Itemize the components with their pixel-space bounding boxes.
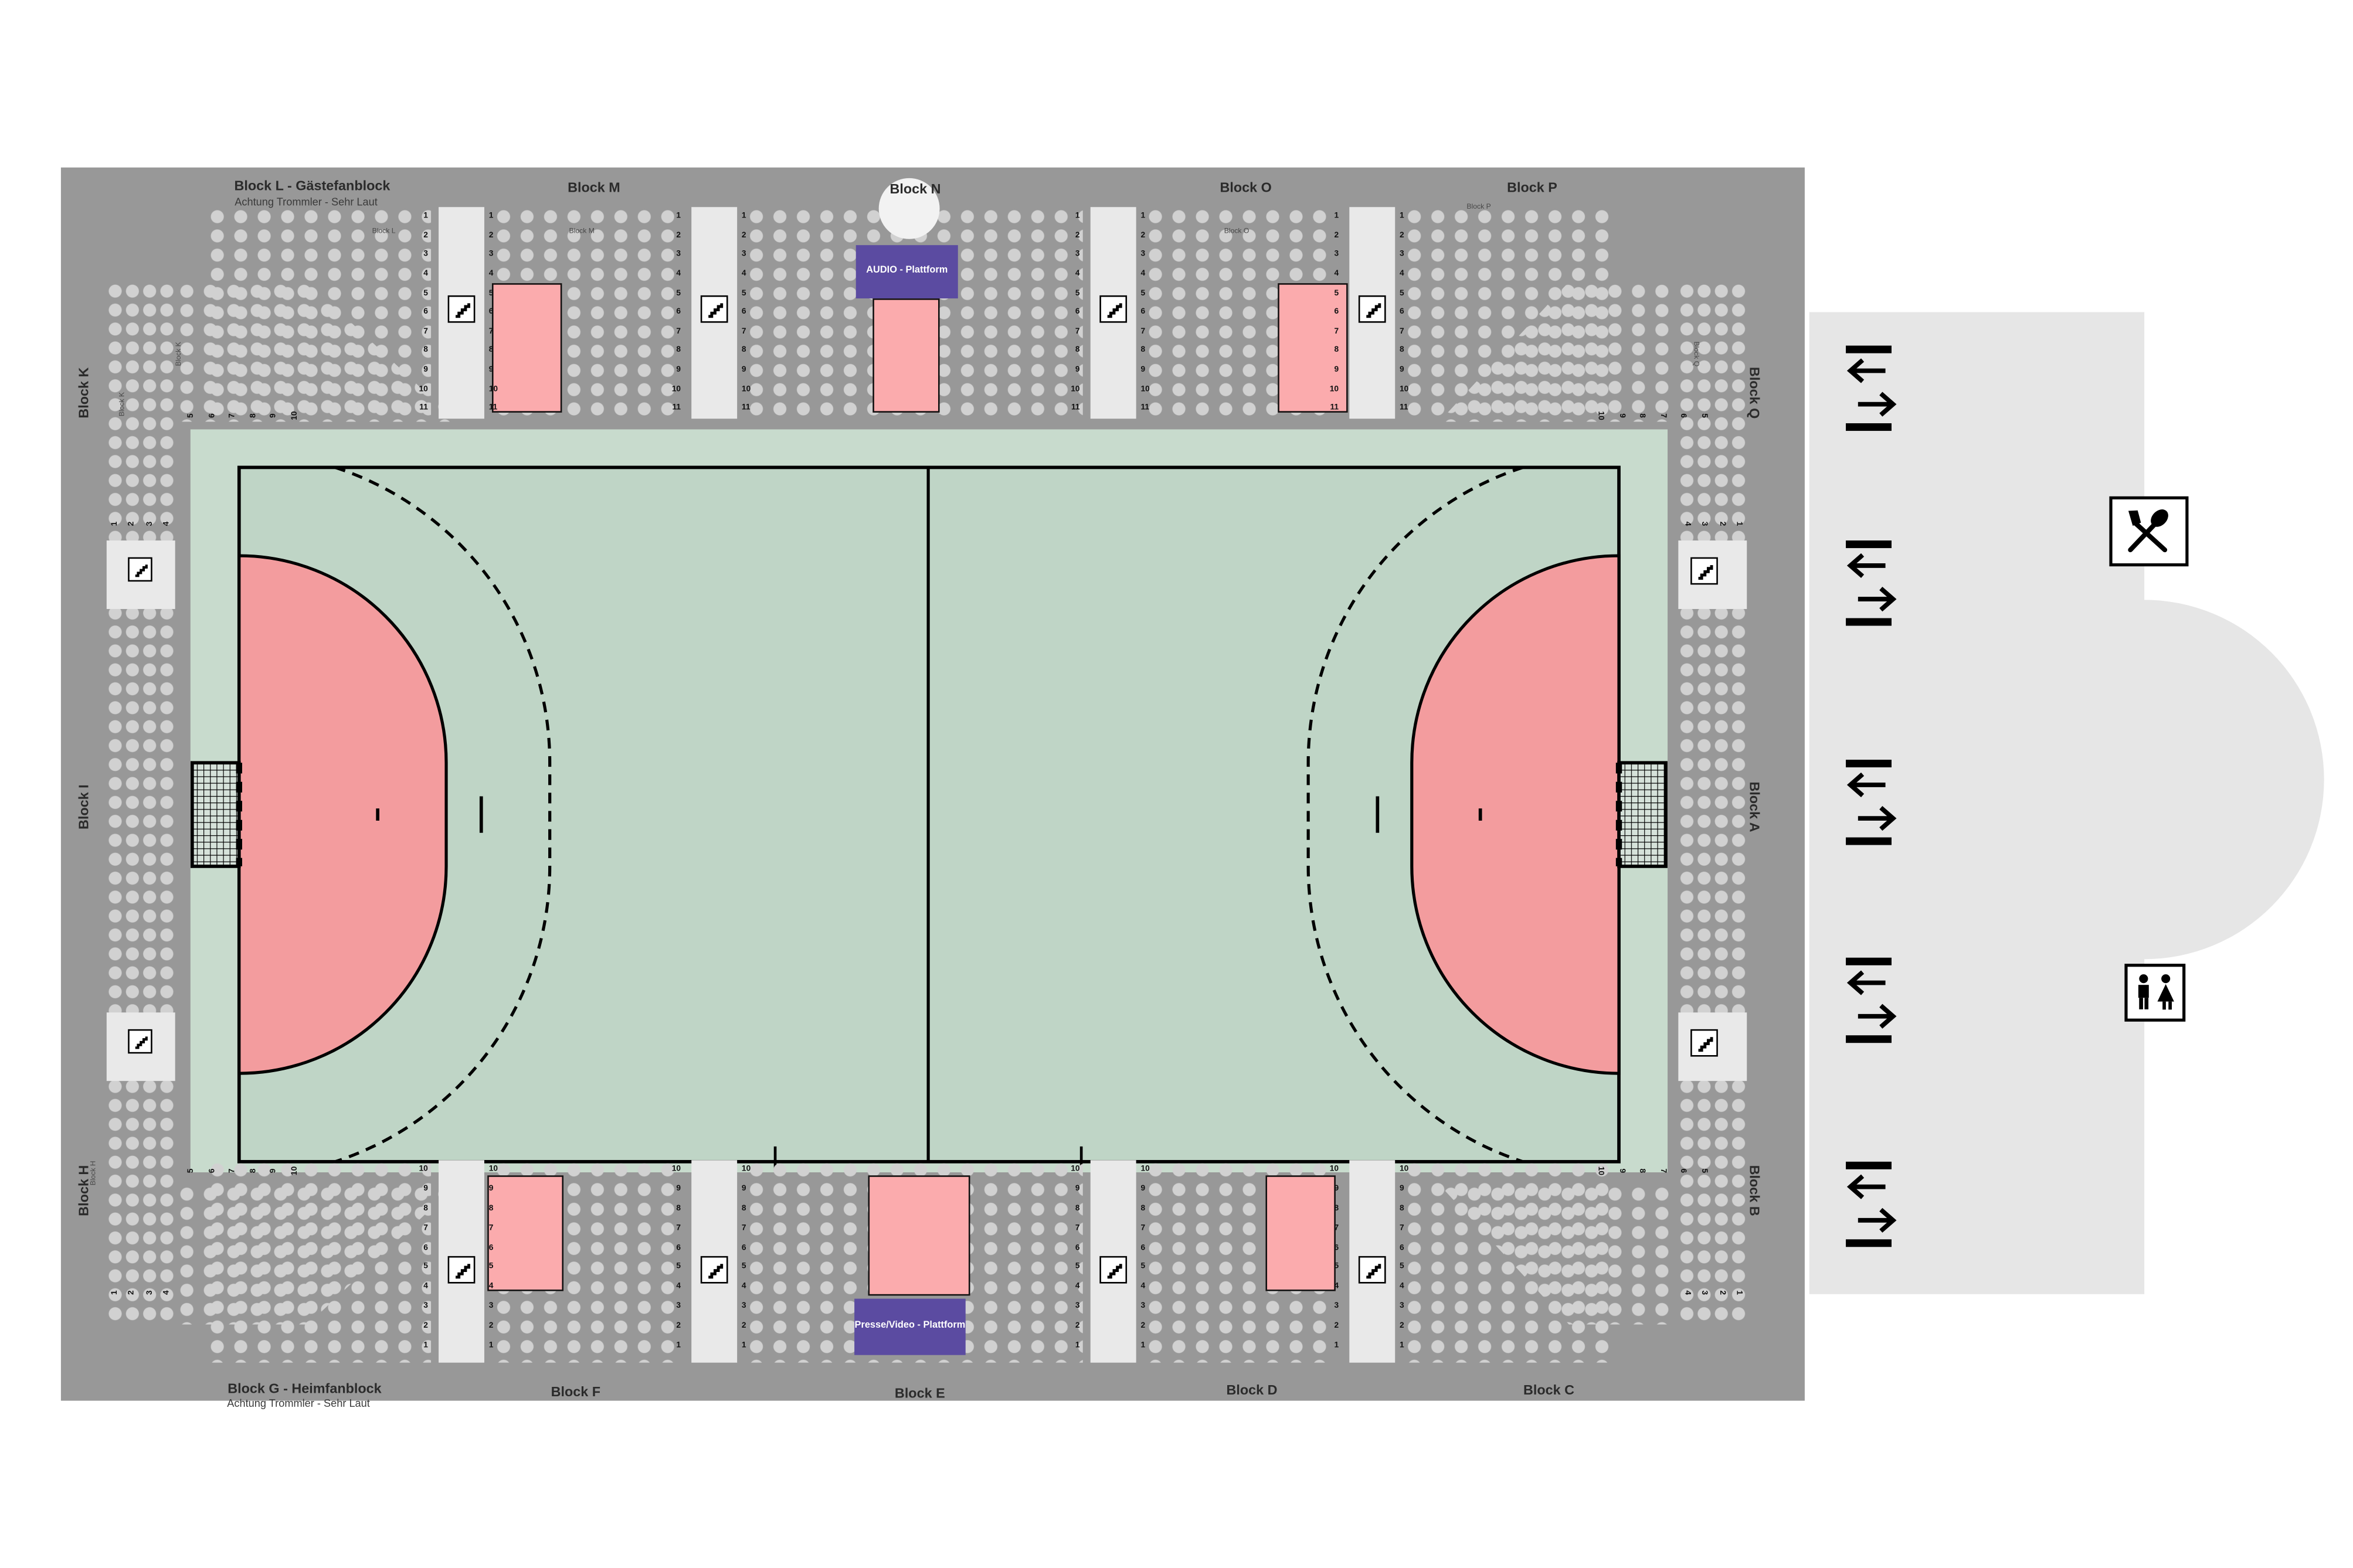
block-l-note: Achtung Trommler - Sehr Laut <box>138 197 473 208</box>
seat-row-number: 8 <box>1634 406 1649 426</box>
seat-row-number: 2 <box>1140 226 1162 246</box>
seat-row-number: 10 <box>489 380 510 399</box>
seat-row-number: 10 <box>287 1161 302 1181</box>
seat-row-number: 9 <box>1140 361 1162 380</box>
seat-row-number: 4 <box>1318 1278 1339 1297</box>
seat-row-number: 5 <box>1058 284 1079 303</box>
seat-row-number: 1 <box>489 207 510 226</box>
block-b-title: Block B <box>1746 1099 1764 1282</box>
seat-row-number: 1 <box>108 1284 123 1301</box>
seat-row-number: 3 <box>1318 246 1339 265</box>
seat-row-number: 6 <box>1318 1239 1339 1258</box>
press-video-platform-label: Presse/Video - Plattform <box>855 1322 966 1332</box>
seat-row-number: 11 <box>407 399 428 419</box>
row-numbers: 1234567891011 <box>1318 207 1339 419</box>
seat-row-number: 6 <box>1318 303 1339 322</box>
stairs-icon[interactable] <box>448 1256 476 1284</box>
seat-row-number: 3 <box>660 1298 681 1317</box>
seat-row-number: 2 <box>407 1317 428 1336</box>
seat-row-number: 7 <box>489 1219 510 1239</box>
seat-row-number: 7 <box>1654 406 1669 426</box>
seat-row-number: 9 <box>1400 1180 1421 1199</box>
seat-row-number: 1 <box>1318 1337 1339 1356</box>
seat-row-number: 3 <box>660 246 681 265</box>
block-f-title: Block F <box>408 1383 743 1399</box>
seat-row-number: 2 <box>660 1317 681 1336</box>
seat-row-number: 1 <box>1058 207 1079 226</box>
seat-row-number: 3 <box>742 246 763 265</box>
seat-row-number: 2 <box>1058 1317 1079 1336</box>
row-numbers: 10987654321 <box>1140 1160 1162 1356</box>
seat-row-number: 1 <box>1731 515 1746 532</box>
seat-row-number: 9 <box>660 1180 681 1199</box>
seat-row-number: 6 <box>742 1239 763 1258</box>
column-numbers: 1234 <box>107 1285 175 1300</box>
seat-row-number: 10 <box>1058 1160 1079 1179</box>
seat-row-number: 10 <box>742 1160 763 1179</box>
seat-row-number: 6 <box>205 1161 220 1181</box>
seat-row-number: 7 <box>742 322 763 342</box>
seat-row-number: 4 <box>1318 265 1339 284</box>
restaurant-icon[interactable] <box>2109 496 2188 566</box>
seat-row-number: 10 <box>489 1160 510 1179</box>
press-video-platform[interactable]: Presse/Video - Plattform <box>854 1299 966 1355</box>
column-numbers: 1234 <box>107 516 175 532</box>
seat-row-number: 3 <box>489 246 510 265</box>
seat-row-number: 1 <box>1400 207 1421 226</box>
seat-row-number: 2 <box>125 1284 140 1301</box>
seat-row-number: 6 <box>742 303 763 322</box>
seat-row-number: 8 <box>246 1161 261 1181</box>
seat-row-number: 4 <box>660 1278 681 1297</box>
seat-row-number: 8 <box>1634 1161 1649 1181</box>
entrance-exit-icon[interactable] <box>1846 540 1897 625</box>
seat-row-number: 5 <box>1058 1259 1079 1278</box>
block-i-title: Block I <box>74 716 93 899</box>
column-numbers: 4321 <box>1678 516 1747 532</box>
seat-row-number: 7 <box>1140 1219 1162 1239</box>
stairs-icon[interactable] <box>1359 1256 1386 1284</box>
seat-row-number: 8 <box>1400 342 1421 361</box>
seat-row-number: 4 <box>1400 265 1421 284</box>
seat-row-number: 11 <box>489 399 510 419</box>
column-numbers: 4321 <box>1678 1285 1747 1300</box>
seat-row-number: 10 <box>1140 380 1162 399</box>
seat-row-number: 1 <box>660 207 681 226</box>
row-numbers: 1234567891011 <box>489 207 510 419</box>
seat-row-number: 3 <box>142 515 157 532</box>
handball-court <box>191 429 1668 1172</box>
seat-row-number: 7 <box>225 406 240 426</box>
seat-row-number: 5 <box>660 284 681 303</box>
promenade-bulge <box>1965 600 2324 959</box>
block-a-title: Block A <box>1746 716 1764 899</box>
seat-row-number: 7 <box>407 322 428 342</box>
seat-row-number: 9 <box>266 406 281 426</box>
block-k-watermark: Block K <box>115 365 128 441</box>
seat-row-number: 5 <box>1400 284 1421 303</box>
seat-row-number: 7 <box>407 1219 428 1239</box>
seat-row-number: 6 <box>407 1239 428 1258</box>
seat-row-number: 1 <box>1318 207 1339 226</box>
stairs-icon[interactable] <box>448 295 476 323</box>
seat-row-number: 4 <box>1058 265 1079 284</box>
seat-row-number: 5 <box>489 284 510 303</box>
seat-row-number: 9 <box>1318 361 1339 380</box>
block-d-title: Block D <box>1084 1382 1419 1397</box>
seat-row-number: 1 <box>742 207 763 226</box>
audio-platform-label: AUDIO - Plattform <box>866 267 948 277</box>
seat-row-number: 8 <box>660 1199 681 1219</box>
seat-row-number: 4 <box>489 1278 510 1297</box>
seat-row-number: 9 <box>266 1161 281 1181</box>
seat-row-number: 6 <box>205 406 220 426</box>
seat-row-number: 7 <box>1654 1161 1669 1181</box>
seat-row-number: 10 <box>287 406 302 426</box>
seat-row-number: 2 <box>1400 1317 1421 1336</box>
seat-row-number: 3 <box>489 1298 510 1317</box>
seat-row-number: 4 <box>1679 1284 1695 1301</box>
seat-row-number: 4 <box>742 265 763 284</box>
stairs-icon[interactable] <box>1099 1256 1127 1284</box>
seat-row-number: 6 <box>1400 303 1421 322</box>
seat-row-number: 5 <box>184 406 199 426</box>
seat-row-number: 6 <box>1058 303 1079 322</box>
seat-row-number: 5 <box>184 1161 199 1181</box>
seat-row-number: 9 <box>1140 1180 1162 1199</box>
row-numbers: 1234567891011 <box>407 207 428 419</box>
arena-seating-plan: AUDIO - Plattform Presse/Video - Plattfo… <box>0 0 2353 1568</box>
seat-row-number: 2 <box>742 1317 763 1336</box>
seat-row-number: 10 <box>660 380 681 399</box>
seat-row-number: 1 <box>1731 1284 1746 1301</box>
seat-row-number: 10 <box>1140 1160 1162 1179</box>
seat-row-number: 10 <box>1318 1160 1339 1179</box>
entrance-exit-icon[interactable] <box>1846 760 1897 845</box>
seat-row-number: 2 <box>1714 1284 1729 1301</box>
seat-row-number: 2 <box>1318 226 1339 246</box>
seat-row-number: 4 <box>159 1284 175 1301</box>
seat-row-number: 6 <box>660 303 681 322</box>
seat-row-number: 6 <box>489 1239 510 1258</box>
seat-row-number: 9 <box>742 361 763 380</box>
seat-row-number: 4 <box>742 1278 763 1297</box>
block-g-note: Achtung Trommler - Sehr Laut <box>131 1399 466 1410</box>
seat-row-number: 9 <box>407 361 428 380</box>
seat-row-number: 7 <box>742 1219 763 1239</box>
block-q-title: Block Q <box>1746 301 1764 484</box>
seat-row-number: 1 <box>1140 1337 1162 1356</box>
seat-row-number: 4 <box>1140 1278 1162 1297</box>
seat-row-number: 3 <box>1058 246 1079 265</box>
seat-row-number: 7 <box>1318 1219 1339 1239</box>
seat-row-number: 6 <box>489 303 510 322</box>
seat-row-number: 9 <box>1613 1161 1628 1181</box>
seat-row-number: 5 <box>742 284 763 303</box>
seat-row-number: 11 <box>742 399 763 419</box>
seat-row-number: 2 <box>1318 1317 1339 1336</box>
seat-row-number: 9 <box>407 1180 428 1199</box>
seat-row-number: 4 <box>1140 265 1162 284</box>
row-numbers: 10987654321 <box>660 1160 681 1356</box>
seat-row-number: 11 <box>660 399 681 419</box>
seat-row-number: 11 <box>1400 399 1421 419</box>
block-n-title: Block N <box>748 181 1082 196</box>
corner-column-numbers: 5678910 <box>181 1163 304 1178</box>
seat-row-number: 4 <box>1400 1278 1421 1297</box>
seat-row-number: 4 <box>1058 1278 1079 1297</box>
row-numbers: 10987654321 <box>1318 1160 1339 1356</box>
seat-row-number: 6 <box>407 303 428 322</box>
seat-row-number: 6 <box>660 1239 681 1258</box>
seat-row-number: 2 <box>489 226 510 246</box>
seat-row-number: 7 <box>1058 322 1079 342</box>
seat-row-number: 7 <box>1058 1219 1079 1239</box>
block-o-watermark: Block O <box>1183 227 1290 234</box>
seat-row-number: 2 <box>1140 1317 1162 1336</box>
seat-row-number: 6 <box>1675 1161 1690 1181</box>
entrance-exit-icon[interactable] <box>1846 1162 1897 1247</box>
seat-row-number: 9 <box>489 1180 510 1199</box>
seat-row-number: 3 <box>407 1298 428 1317</box>
seat-row-number: 8 <box>489 342 510 361</box>
seat-row-number: 6 <box>1675 406 1690 426</box>
stairs-icon[interactable] <box>128 557 152 582</box>
corner-column-numbers: 5678910 <box>181 408 304 423</box>
corner-column-numbers: 1098765 <box>1590 408 1713 423</box>
seat-row-number: 5 <box>1696 406 1711 426</box>
seat-row-number: 10 <box>407 1160 428 1179</box>
seat-row-number: 9 <box>742 1180 763 1199</box>
seat-row-number: 8 <box>1140 342 1162 361</box>
seat-row-number: 11 <box>1140 399 1162 419</box>
block-k-title: Block K <box>74 301 93 484</box>
seat-row-number: 7 <box>225 1161 240 1181</box>
block-q-watermark: Block Q <box>1690 315 1703 392</box>
block-o-title: Block O <box>1078 179 1413 194</box>
seat-row-number: 11 <box>1058 399 1079 419</box>
entrance-exit-icon[interactable] <box>1846 346 1897 431</box>
block-m-watermark: Block M <box>528 227 635 234</box>
seat-row-number: 5 <box>1318 1259 1339 1278</box>
seat-row-number: 10 <box>1058 380 1079 399</box>
row-numbers: 10987654321 <box>1400 1160 1421 1356</box>
row-numbers: 10987654321 <box>407 1160 428 1356</box>
seat-row-number: 3 <box>1318 1298 1339 1317</box>
seat-row-number: 11 <box>1318 399 1339 419</box>
seat-row-number: 3 <box>1140 246 1162 265</box>
row-numbers: 1234567891011 <box>1140 207 1162 419</box>
seat-row-number: 5 <box>407 1259 428 1278</box>
seat-row-number: 3 <box>407 246 428 265</box>
seat-row-number: 5 <box>1400 1259 1421 1278</box>
seat-row-number: 6 <box>1400 1239 1421 1258</box>
seat-row-number: 4 <box>489 265 510 284</box>
seat-row-number: 3 <box>1696 1284 1712 1301</box>
corner-column-numbers: 1098765 <box>1590 1163 1713 1178</box>
stairs-icon[interactable] <box>701 1256 728 1284</box>
standing-platform[interactable] <box>868 1175 970 1295</box>
seat-row-number: 2 <box>1714 515 1729 532</box>
seat-row-number: 3 <box>1400 1298 1421 1317</box>
seat-row-number: 7 <box>1400 322 1421 342</box>
seat-row-number: 10 <box>407 380 428 399</box>
seat-row-number: 9 <box>1058 1180 1079 1199</box>
seat-row-number: 1 <box>407 1337 428 1356</box>
seat-row-number: 10 <box>742 380 763 399</box>
seat-row-number: 4 <box>1679 515 1695 532</box>
seat-row-number: 8 <box>742 1199 763 1219</box>
seat-row-number: 5 <box>489 1259 510 1278</box>
seat-row-number: 10 <box>1318 380 1339 399</box>
seat-row-number: 9 <box>1613 406 1628 426</box>
seat-row-number: 3 <box>1058 1298 1079 1317</box>
goal-left <box>192 763 239 866</box>
seat-row-number: 3 <box>742 1298 763 1317</box>
row-numbers: 1234567891011 <box>1400 207 1421 419</box>
seat-row-number: 9 <box>1058 361 1079 380</box>
stairs-icon[interactable] <box>1099 295 1127 323</box>
seat-row-number: 5 <box>1696 1161 1711 1181</box>
seat-row-number: 1 <box>489 1337 510 1356</box>
stairs-icon[interactable] <box>1359 295 1386 323</box>
seat-row-number: 4 <box>407 1278 428 1297</box>
block-p-watermark: Block P <box>1425 202 1532 210</box>
row-numbers: 10987654321 <box>1058 1160 1079 1356</box>
seat-row-number: 8 <box>1058 342 1079 361</box>
seat-row-number: 6 <box>1058 1239 1079 1258</box>
seat-row-number: 8 <box>1058 1199 1079 1219</box>
seat-row-number: 1 <box>108 515 123 532</box>
row-numbers: 1234567891011 <box>1058 207 1079 419</box>
seat-row-number: 8 <box>742 342 763 361</box>
seat-row-number: 7 <box>660 1219 681 1239</box>
seat-row-number: 3 <box>1400 246 1421 265</box>
seat-row-number: 2 <box>407 226 428 246</box>
wc-icon[interactable] <box>2124 964 2185 1022</box>
seat-row-number: 2 <box>1400 226 1421 246</box>
seat-row-number: 5 <box>1140 284 1162 303</box>
seat-row-number: 5 <box>660 1259 681 1278</box>
seat-row-number: 10 <box>1400 1160 1421 1179</box>
seat-row-number: 9 <box>489 361 510 380</box>
seat-row-number: 10 <box>660 1160 681 1179</box>
stairs-icon[interactable] <box>701 295 728 323</box>
seat-row-number: 8 <box>1318 1199 1339 1219</box>
seat-row-number: 10 <box>1400 380 1421 399</box>
seat-row-number: 2 <box>125 515 140 532</box>
seat-row-number: 7 <box>1400 1219 1421 1239</box>
row-numbers: 10987654321 <box>742 1160 763 1356</box>
seat-row-number: 1 <box>742 1337 763 1356</box>
stairs-icon[interactable] <box>1690 557 1718 585</box>
seat-row-number: 5 <box>1140 1259 1162 1278</box>
seat-row-number: 8 <box>1318 342 1339 361</box>
seat-row-number: 7 <box>489 322 510 342</box>
seat-row-number: 10 <box>1593 406 1608 426</box>
standing-platform[interactable] <box>872 298 939 413</box>
seat-row-number: 4 <box>660 265 681 284</box>
seat-row-number: 2 <box>489 1317 510 1336</box>
seat-row-number: 8 <box>246 406 261 426</box>
seat-row-number: 8 <box>1400 1199 1421 1219</box>
seat-row-number: 3 <box>142 1284 157 1301</box>
seat-row-number: 5 <box>742 1259 763 1278</box>
block-c-title: Block C <box>1381 1382 1716 1397</box>
seat-row-number: 10 <box>1593 1161 1608 1181</box>
seat-row-number: 1 <box>1058 1337 1079 1356</box>
seat-row-number: 5 <box>1318 284 1339 303</box>
seat-row-number: 1 <box>660 1337 681 1356</box>
seat-row-number: 3 <box>1696 515 1712 532</box>
row-numbers: 10987654321 <box>489 1160 510 1356</box>
block-m-title: Block M <box>426 179 761 194</box>
row-numbers: 1234567891011 <box>660 207 681 419</box>
seat-row-number: 8 <box>407 1199 428 1219</box>
seat-row-number: 2 <box>1058 226 1079 246</box>
audio-platform[interactable]: AUDIO - Plattform <box>856 245 958 298</box>
seat-row-number: 8 <box>489 1199 510 1219</box>
stairs-icon[interactable] <box>1690 1029 1718 1057</box>
seat-row-number: 4 <box>407 265 428 284</box>
row-numbers: 1234567891011 <box>742 207 763 419</box>
seat-row-number: 4 <box>159 515 175 532</box>
seat-row-number: 9 <box>660 361 681 380</box>
block-p-title: Block P <box>1364 179 1699 194</box>
block-e-title: Block E <box>752 1385 1087 1400</box>
goal-right <box>1619 763 1666 866</box>
seat-row-number: 1 <box>407 207 428 226</box>
seat-row-number: 9 <box>1400 361 1421 380</box>
seat-row-number: 1 <box>1140 207 1162 226</box>
seat-row-number: 8 <box>660 342 681 361</box>
seat-row-number: 5 <box>407 284 428 303</box>
seat-row-number: 1 <box>1400 1337 1421 1356</box>
seat-row-number: 3 <box>1140 1298 1162 1317</box>
seat-row-number: 8 <box>407 342 428 361</box>
stairs-icon[interactable] <box>128 1029 152 1054</box>
block-h-watermark: Block H <box>86 1134 100 1210</box>
entrance-exit-icon[interactable] <box>1846 958 1897 1043</box>
block-k-watermark: Block K <box>171 315 185 392</box>
seat-row-number: 7 <box>660 322 681 342</box>
seat-row-number: 6 <box>1140 1239 1162 1258</box>
seat-row-number: 8 <box>1140 1199 1162 1219</box>
seat-row-number: 6 <box>1140 303 1162 322</box>
seat-row-number: 7 <box>1140 322 1162 342</box>
seat-row-number: 2 <box>660 226 681 246</box>
seat-row-number: 9 <box>1318 1180 1339 1199</box>
seat-row-number: 7 <box>1318 322 1339 342</box>
seat-row-number: 2 <box>742 226 763 246</box>
